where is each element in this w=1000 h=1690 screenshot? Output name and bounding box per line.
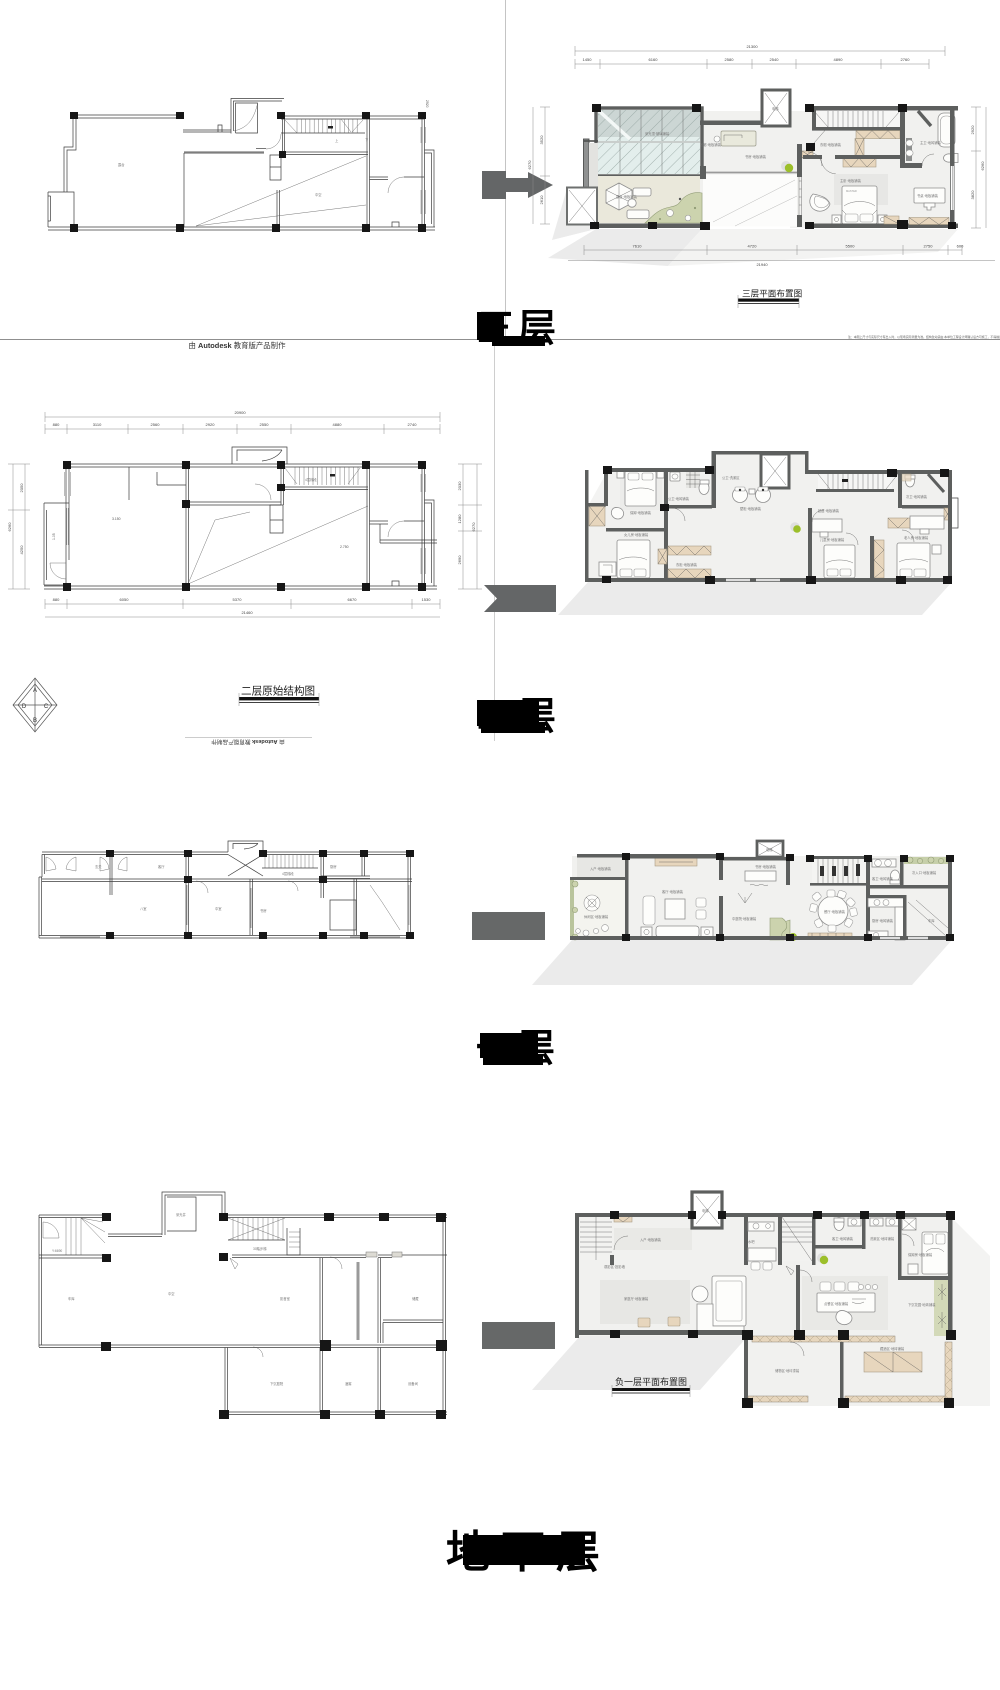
- svg-text:书桌·地板铺装: 书桌·地板铺装: [917, 193, 939, 198]
- svg-text:6270: 6270: [527, 160, 532, 170]
- svg-text:6050: 6050: [120, 597, 130, 602]
- svg-text:书房·地板铺装: 书房·地板铺装: [755, 864, 777, 869]
- svg-text:4层梯段: 4层梯段: [282, 871, 294, 876]
- svg-text:三层平面布置图: 三层平面布置图: [742, 288, 802, 299]
- svg-text:餐厅·地板铺装: 餐厅·地板铺装: [824, 909, 846, 914]
- svg-text:2610: 2610: [539, 195, 544, 205]
- svg-text:4890: 4890: [834, 57, 844, 62]
- svg-text:6160: 6160: [649, 57, 659, 62]
- svg-text:21300: 21300: [746, 44, 758, 49]
- svg-text:3820: 3820: [970, 190, 975, 200]
- svg-text:2550: 2550: [260, 422, 270, 427]
- svg-text:2920: 2920: [970, 125, 975, 135]
- svg-text:Y:6690: Y:6690: [52, 1249, 62, 1253]
- svg-text:中庭院·地板铺装: 中庭院·地板铺装: [732, 916, 757, 921]
- svg-text:老人房·地板铺装: 老人房·地板铺装: [904, 535, 929, 540]
- svg-text:6260: 6260: [7, 522, 12, 532]
- svg-text:5500: 5500: [846, 244, 856, 249]
- svg-text:主卧·地板铺装: 主卧·地板铺装: [840, 178, 862, 183]
- svg-text:保姆房·地板铺装: 保姆房·地板铺装: [908, 1252, 933, 1257]
- svg-text:MASTER: MASTER: [846, 189, 857, 193]
- svg-text:观影区·投影墙: 观影区·投影墙: [604, 1264, 626, 1269]
- svg-text:2540: 2540: [770, 57, 780, 62]
- svg-text:1280: 1280: [457, 514, 462, 524]
- svg-text:衣帽·地板铺装: 衣帽·地板铺装: [820, 142, 842, 147]
- svg-text:B: B: [33, 718, 37, 724]
- svg-text:客厅·地板铺装: 客厅·地板铺装: [662, 889, 684, 894]
- svg-text:由 Autodesk 教育版产品制作: 由 Autodesk 教育版产品制作: [189, 341, 287, 350]
- svg-text:2920: 2920: [206, 422, 216, 427]
- svg-text:客卫·地砖铺装: 客卫·地砖铺装: [872, 876, 894, 881]
- svg-text:水吧: 水吧: [748, 1239, 755, 1244]
- svg-text:4720: 4720: [748, 244, 758, 249]
- svg-text:2920: 2920: [425, 100, 429, 108]
- svg-text:6260: 6260: [980, 161, 985, 171]
- svg-text:玄关: 玄关: [95, 864, 102, 869]
- svg-text:2690: 2690: [457, 555, 462, 565]
- svg-text:书房·地板铺装: 书房·地板铺装: [745, 154, 767, 159]
- svg-text:A: A: [33, 688, 37, 694]
- svg-text:2560: 2560: [151, 422, 161, 427]
- svg-text:储物区·地坪漆装: 储物区·地坪漆装: [775, 1368, 800, 1373]
- svg-text:次入口·地板铺装: 次入口·地板铺装: [912, 870, 937, 875]
- svg-text:长廊·地板铺装: 长廊·地板铺装: [700, 142, 722, 147]
- svg-text:3110: 3110: [93, 422, 102, 427]
- svg-text:中室: 中室: [215, 906, 222, 911]
- svg-text:保姆·地板铺装: 保姆·地板铺装: [630, 510, 652, 515]
- svg-text:电梯: 电梯: [772, 106, 779, 111]
- svg-text:2030: 2030: [457, 481, 462, 491]
- svg-text:2740: 2740: [408, 422, 418, 427]
- svg-text:八室: 八室: [140, 906, 147, 911]
- svg-text:1450: 1450: [583, 57, 593, 62]
- svg-text:下沉花园·地砖铺装: 下沉花园·地砖铺装: [908, 1302, 936, 1307]
- svg-text:采光顶·玻璃铺装: 采光顶·玻璃铺装: [645, 131, 670, 136]
- svg-text:书房: 书房: [260, 908, 267, 913]
- svg-text:采光井: 采光井: [176, 1212, 187, 1217]
- svg-text:21460: 21460: [241, 610, 253, 615]
- svg-text:下沉庭院: 下沉庭院: [270, 1381, 284, 1386]
- svg-text:客厅: 客厅: [158, 864, 165, 869]
- svg-text:注：本图上尺寸与实际尺寸有出入时，以现场实际测量为准。结构改: 注：本图上尺寸与实际尺寸有出入时，以现场实际测量为准。结构改动需由 本单位工程设…: [848, 334, 1000, 339]
- svg-text:露台·地板铺装: 露台·地板铺装: [616, 194, 638, 199]
- svg-text:4层梯段: 4层梯段: [305, 477, 317, 482]
- svg-text:储藏: 储藏: [412, 1296, 419, 1301]
- svg-text:电梯: 电梯: [702, 1208, 709, 1213]
- svg-text:3.150: 3.150: [112, 517, 121, 521]
- svg-text:880: 880: [53, 597, 60, 602]
- svg-text:设备间: 设备间: [408, 1381, 418, 1386]
- svg-text:入户·地板铺装: 入户·地板铺装: [640, 1237, 662, 1242]
- svg-text:公卫·洗漱区: 公卫·洗漱区: [722, 475, 740, 480]
- svg-text:中空: 中空: [168, 1291, 175, 1296]
- svg-text:C: C: [44, 704, 49, 710]
- svg-text:2760: 2760: [901, 57, 911, 62]
- svg-text:公卫·地砖铺装: 公卫·地砖铺装: [668, 496, 690, 501]
- svg-text:厨房·地砖铺装: 厨房·地砖铺装: [872, 918, 894, 923]
- svg-text:D: D: [22, 704, 27, 710]
- svg-text:厨房: 厨房: [330, 864, 337, 869]
- svg-text:1.05: 1.05: [52, 533, 56, 540]
- svg-text:2580: 2580: [725, 57, 735, 62]
- svg-text:6270: 6270: [471, 522, 476, 532]
- svg-text:4250: 4250: [19, 545, 24, 555]
- svg-text:家庭厅·地板铺装: 家庭厅·地板铺装: [624, 1296, 649, 1301]
- svg-text:休闲区·地板铺装: 休闲区·地板铺装: [584, 914, 609, 919]
- svg-text:2050: 2050: [19, 483, 24, 493]
- svg-text:21940: 21940: [756, 262, 768, 267]
- svg-text:7610: 7610: [633, 244, 643, 249]
- svg-text:洗漱区·地砖铺装: 洗漱区·地砖铺装: [870, 1236, 895, 1241]
- svg-text:主卫·地砖铺装: 主卫·地砖铺装: [920, 140, 942, 145]
- svg-text:5370: 5370: [233, 597, 243, 602]
- svg-text:起居·地板铺装: 起居·地板铺装: [818, 508, 840, 513]
- svg-text:儿童房·地板铺装: 儿童房·地板铺装: [820, 537, 845, 542]
- svg-text:车库: 车库: [928, 918, 935, 923]
- svg-text:20900: 20900: [234, 410, 246, 415]
- svg-text:中空: 中空: [315, 192, 322, 197]
- svg-text:4880: 4880: [333, 422, 343, 427]
- svg-text:次卫·地砖铺装: 次卫·地砖铺装: [906, 494, 928, 499]
- svg-text:车库: 车库: [68, 1296, 75, 1301]
- svg-text:点餐区·地板铺装: 点餐区·地板铺装: [824, 1301, 849, 1306]
- svg-text:2.750: 2.750: [340, 545, 349, 549]
- svg-text:880: 880: [53, 422, 60, 427]
- svg-text:入户·地板铺装: 入户·地板铺装: [590, 866, 612, 871]
- svg-text:1530: 1530: [422, 597, 432, 602]
- svg-text:女儿房·地板铺装: 女儿房·地板铺装: [624, 532, 649, 537]
- svg-text:影音室: 影音室: [280, 1296, 291, 1301]
- svg-text:壁柜·地板铺装: 壁柜·地板铺装: [740, 506, 762, 511]
- svg-text:6670: 6670: [348, 597, 358, 602]
- svg-text:酒窖: 酒窖: [345, 1381, 352, 1386]
- svg-text:客卫·地砖铺装: 客卫·地砖铺装: [832, 1236, 854, 1241]
- svg-text:电梯: 电梯: [766, 847, 773, 852]
- svg-text:3520: 3520: [539, 135, 544, 145]
- svg-text:由 Autodesk 教育版产品制作: 由 Autodesk 教育版产品制作: [211, 738, 285, 746]
- svg-text:衣柜·地板铺装: 衣柜·地板铺装: [676, 562, 698, 567]
- svg-text:露台: 露台: [118, 162, 125, 167]
- svg-text:二层原始结构图: 二层原始结构图: [241, 685, 315, 698]
- svg-text:藏酒区·地砖铺装: 藏酒区·地砖铺装: [880, 1346, 905, 1351]
- svg-text:负一层平面布置图: 负一层平面布置图: [615, 1376, 687, 1387]
- svg-text:2750: 2750: [924, 244, 934, 249]
- svg-text:600: 600: [957, 244, 964, 249]
- svg-text:30踏步梯: 30踏步梯: [253, 1246, 267, 1251]
